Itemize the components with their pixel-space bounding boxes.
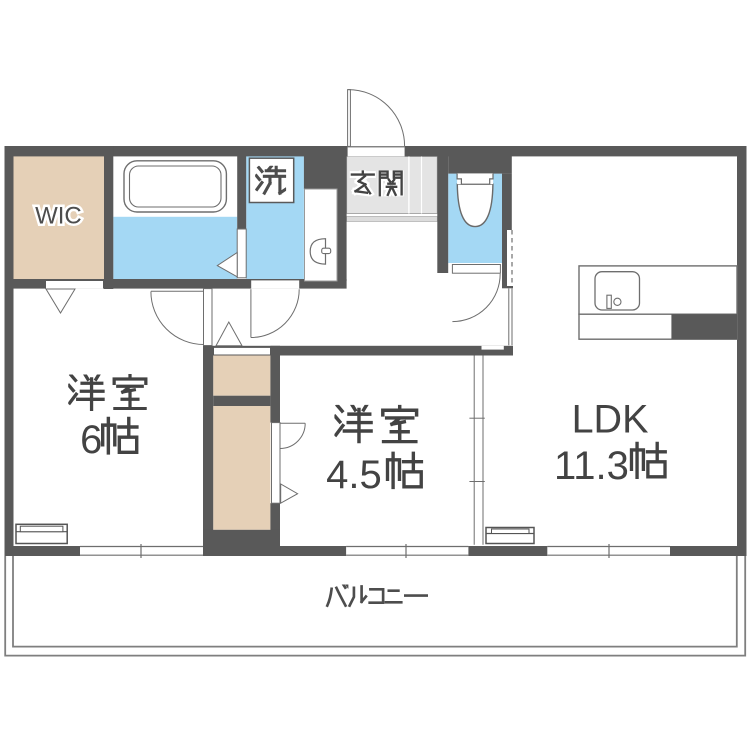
svg-text:11.3: 11.3 — [554, 444, 629, 488]
svg-text:LDK: LDK — [572, 397, 649, 441]
svg-text:4.5: 4.5 — [326, 453, 382, 497]
svg-text:WIC: WIC — [35, 203, 82, 230]
svg-text:6: 6 — [80, 418, 102, 462]
